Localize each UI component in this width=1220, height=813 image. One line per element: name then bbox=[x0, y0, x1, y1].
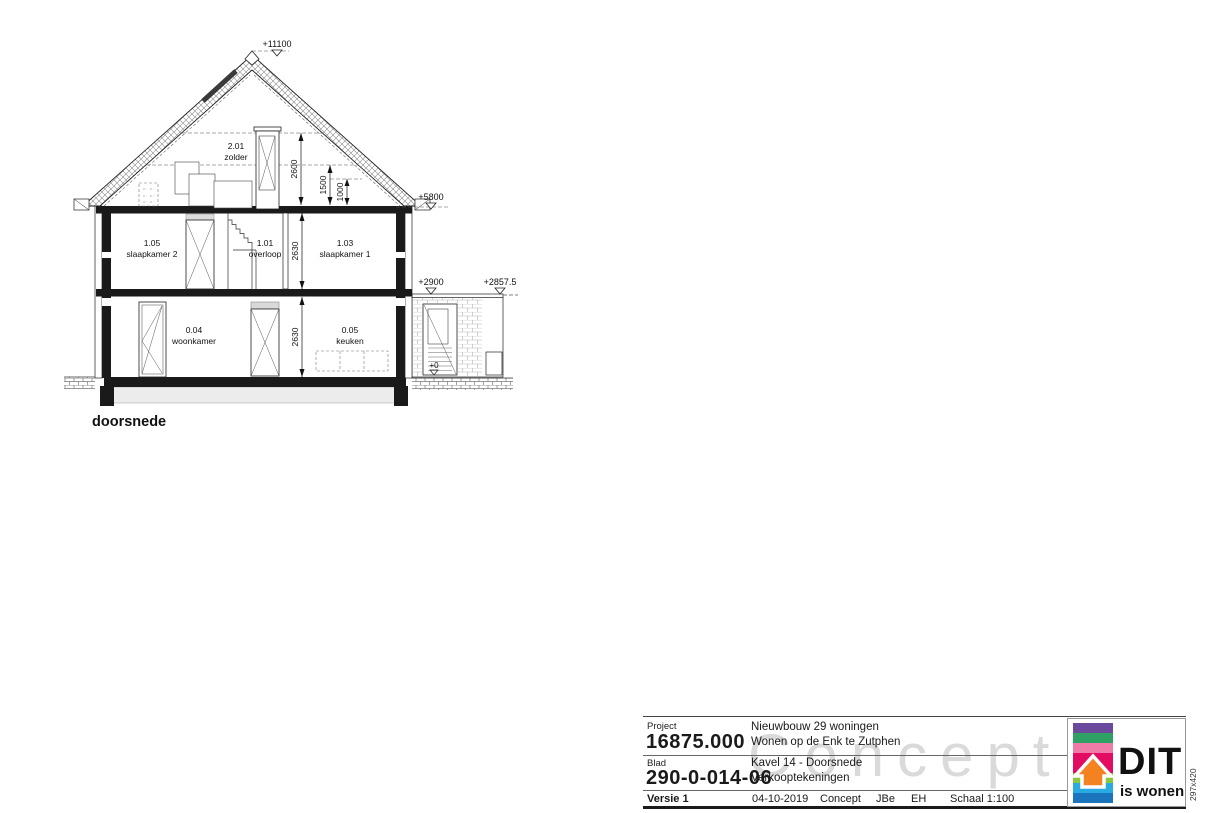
extension-door bbox=[422, 303, 458, 376]
room-code: 1.05 bbox=[144, 238, 161, 248]
dim-attic-low: 1000 bbox=[335, 182, 345, 201]
dimension-arrow-icon bbox=[328, 165, 333, 173]
attic-appliance bbox=[139, 183, 158, 206]
dimension-arrow-icon bbox=[299, 197, 304, 205]
dimension-arrow-icon bbox=[345, 198, 350, 205]
logo-wordmark: DIT bbox=[1118, 743, 1182, 781]
room-code: 2.01 bbox=[228, 141, 245, 151]
project-number: 16875.000 bbox=[646, 731, 745, 754]
dim-attic-mid: 1500 bbox=[318, 175, 328, 194]
kitchen-counter bbox=[316, 351, 388, 371]
date-value: 04-10-2019 bbox=[752, 793, 808, 805]
room-code: 1.03 bbox=[337, 238, 354, 248]
bedroom-door bbox=[186, 220, 214, 289]
section-title: doorsnede bbox=[92, 414, 166, 430]
room-name: keuken bbox=[336, 336, 364, 346]
drawing-sheet: 2600 1500 1000 2630 2630 +11100 +5800 +2… bbox=[0, 0, 1220, 813]
project-name-line1: Nieuwbouw 29 woningen bbox=[751, 721, 879, 733]
dimension-arrow-icon bbox=[300, 281, 305, 289]
room-name: overloop bbox=[249, 249, 282, 259]
dimension-arrow-icon bbox=[300, 297, 305, 305]
dimension-arrow-icon bbox=[299, 133, 304, 141]
versie-label: Versie 1 bbox=[647, 793, 689, 805]
sheet-title-line2: Verkooptekeningen bbox=[751, 772, 849, 784]
attic-cabinet bbox=[214, 181, 252, 208]
paper-format-label: 297x420 bbox=[1188, 768, 1198, 801]
checker-initials: EH bbox=[911, 793, 926, 805]
foundation bbox=[100, 377, 408, 406]
scale-value: Schaal 1:100 bbox=[950, 793, 1014, 805]
elevation-marker-icon bbox=[272, 50, 282, 56]
elevation-marker-icon bbox=[426, 288, 436, 294]
dim-attic-height: 2600 bbox=[289, 159, 299, 178]
titleblock-divider bbox=[643, 790, 1067, 791]
room-code: 0.04 bbox=[186, 325, 203, 335]
room-code: 0.05 bbox=[342, 325, 359, 335]
meter-box bbox=[486, 352, 502, 375]
company-logo: DIT is wonen bbox=[1067, 718, 1186, 807]
elevation-label: +11100 bbox=[263, 39, 292, 49]
elevation-label: +2900 bbox=[418, 277, 443, 287]
title-block: Concept Project 16875.000 Nieuwbouw 29 w… bbox=[643, 716, 1186, 809]
elevation-label: +2857.5 bbox=[484, 277, 517, 287]
dimension-arrow-icon bbox=[345, 179, 350, 186]
room-code: 1.01 bbox=[257, 238, 274, 248]
attic-cabinet bbox=[189, 174, 215, 206]
sheet-title-line1: Kavel 14 - Doorsnede bbox=[751, 757, 862, 769]
partition-wall bbox=[283, 213, 288, 289]
elevation-marker-icon bbox=[495, 288, 505, 294]
livingroom-window bbox=[139, 302, 166, 377]
room-name: slaapkamer 2 bbox=[126, 249, 177, 259]
dim-ground-floor: 2630 bbox=[290, 327, 300, 346]
author-initials: JBe bbox=[876, 793, 895, 805]
project-name-line2: Wonen op de Enk te Zutphen bbox=[751, 736, 900, 748]
elevation-label: +5800 bbox=[418, 192, 443, 202]
logo-tagline: is wonen bbox=[1120, 783, 1184, 800]
section-drawing: 2600 1500 1000 2630 2630 +11100 +5800 +2… bbox=[0, 0, 560, 440]
elevation-label: +0 bbox=[429, 361, 439, 370]
attic-window bbox=[254, 127, 281, 209]
room-name: woonkamer bbox=[171, 336, 216, 346]
titleblock-divider bbox=[643, 755, 1067, 756]
dimension-arrow-icon bbox=[300, 369, 305, 377]
extension bbox=[412, 294, 518, 377]
status-value: Concept bbox=[820, 793, 861, 805]
hall-door bbox=[251, 302, 279, 376]
door-lintel bbox=[186, 214, 214, 220]
room-name: slaapkamer 1 bbox=[319, 249, 370, 259]
dimension-arrow-icon bbox=[328, 197, 333, 205]
dimension-arrow-icon bbox=[300, 213, 305, 221]
dit-logo-icon bbox=[1073, 723, 1113, 803]
room-name: zolder bbox=[224, 152, 247, 162]
dim-first-floor: 2630 bbox=[290, 241, 300, 260]
